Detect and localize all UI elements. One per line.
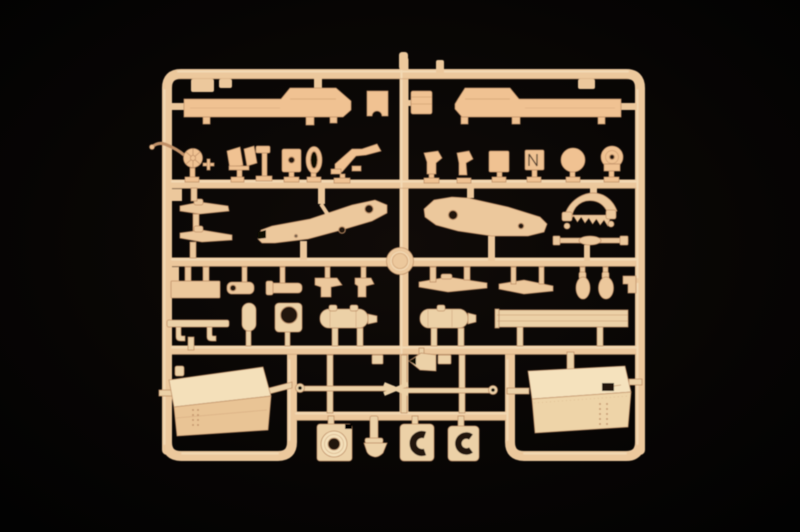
part-plate-with-hole: [282, 149, 301, 182]
part-small-tab-1: [372, 355, 383, 364]
part-small-tab-2: [438, 355, 451, 364]
tank-right-gate-left: [507, 388, 529, 394]
tank-right-gate-right: [629, 379, 642, 385]
part-plate-notched: [525, 150, 544, 182]
stub-frame-left-bottom: [300, 241, 307, 260]
stub-rod: [584, 245, 590, 262]
part-plate-plain: [489, 151, 509, 182]
step-left-rail3: [168, 267, 179, 281]
part-medallion: [387, 248, 414, 275]
sprue-photo: [0, 0, 800, 532]
photo-canvas: [0, 0, 800, 532]
stub-hull-left-end: [171, 103, 185, 110]
part-oval-ring: [306, 147, 322, 183]
part-drum-roller: [411, 91, 432, 114]
feed-stub-center: [399, 52, 408, 70]
stub-frame-right-bottom: [488, 236, 495, 262]
top-tab-a: [191, 79, 214, 92]
stub-hull-right-end: [621, 103, 637, 110]
stub-frame-right-top: [467, 186, 474, 198]
tank-left-filler: [175, 366, 184, 376]
feed-stub-right: [436, 60, 444, 76]
top-tab-b: [219, 79, 232, 88]
stub-frame-left-top: [318, 186, 325, 204]
tank-right-front-face: [532, 392, 631, 433]
tank-right-gate-top: [567, 352, 574, 371]
step-left-rail2: [168, 189, 182, 201]
top-tab-c: [578, 79, 595, 89]
tank-right-slot: [602, 383, 614, 391]
